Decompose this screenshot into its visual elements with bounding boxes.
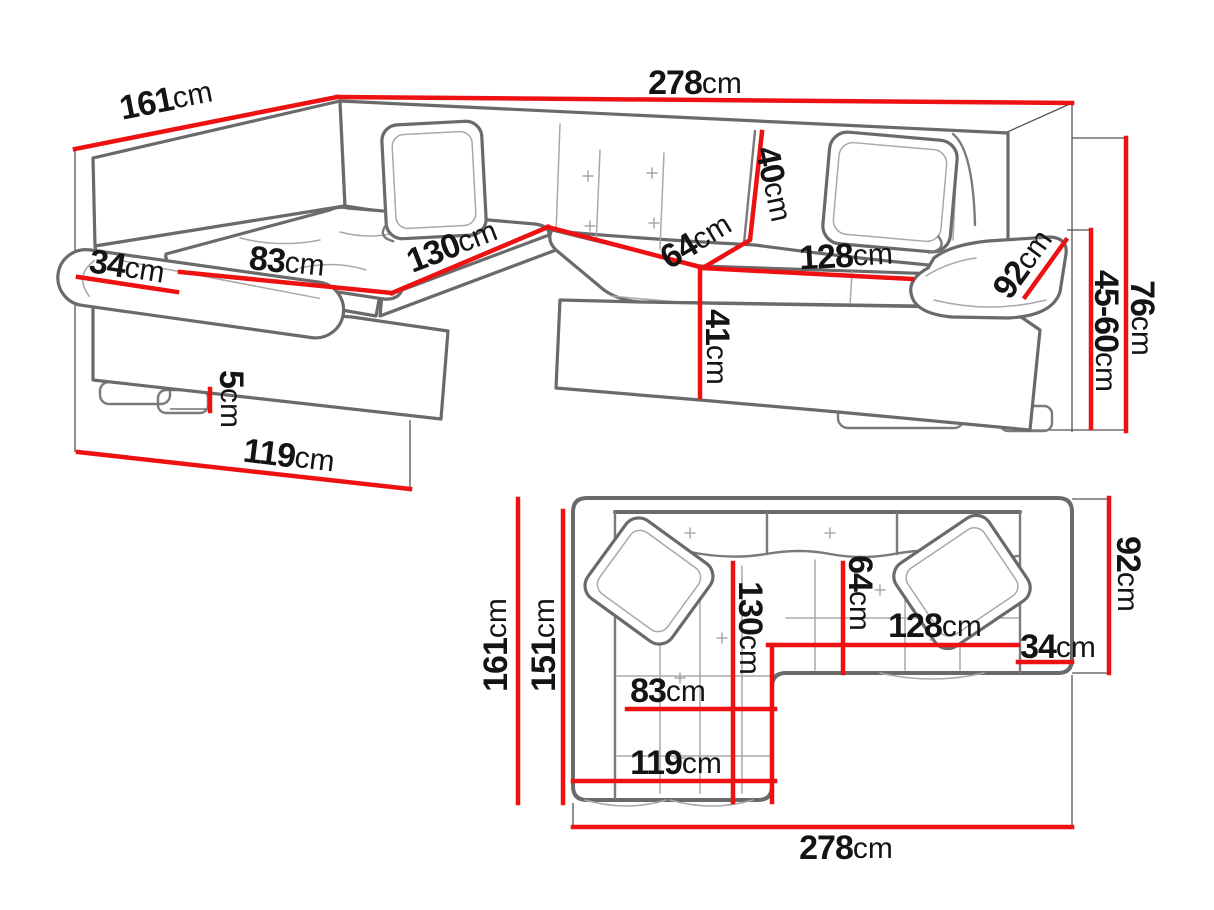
dimension-total-height: 76cm — [1123, 138, 1161, 431]
right-base — [556, 300, 1040, 430]
diagram-svg: 278cm161cm34cm83cm130cm64cm40cm128cm92cm… — [0, 0, 1214, 910]
dimension-total-width: 278cm — [573, 827, 1072, 867]
dimension-adjustable-height: 45-60cm — [1087, 230, 1125, 428]
dimension-label: 130cm — [731, 581, 769, 675]
dimension-label: 278cm — [799, 829, 893, 867]
dimension-side-depth: 92cm — [1109, 498, 1147, 673]
dimension-label: 83cm — [630, 672, 706, 710]
pillow — [821, 131, 958, 255]
dimension-label: 45-60cm — [1087, 270, 1125, 392]
dimension-armrest-width: 34cm — [1018, 628, 1096, 666]
dimension-label: 161cm — [477, 598, 515, 692]
dimension-depth-to-backrest: 151cm — [525, 511, 563, 803]
dimension-label: 119cm — [630, 744, 722, 782]
dimension-total-width: 278cm — [337, 64, 1072, 103]
dimension-label: 151cm — [525, 598, 563, 692]
dimension-chaise-front-width: 119cm — [78, 432, 410, 489]
sofa-sketch-plan: 161cm151cm130cm64cm128cm34cm92cm83cm119c… — [477, 498, 1147, 867]
dimension-label: 64cm — [841, 555, 879, 631]
sofa-sketch-perspective: 278cm161cm34cm83cm130cm64cm40cm128cm92cm… — [54, 64, 1161, 489]
sofa-dimension-diagram: 278cm161cm34cm83cm130cm64cm40cm128cm92cm… — [0, 0, 1214, 910]
dimension-label: 5cm — [212, 370, 250, 428]
dimension-label: 34cm — [1020, 628, 1096, 666]
dimension-total-depth: 161cm — [477, 499, 518, 803]
dimension-leg-height: 5cm — [210, 370, 250, 428]
dimension-label: 41cm — [698, 309, 736, 385]
dimension-label: 76cm — [1123, 280, 1161, 356]
dimension-label: 161cm — [116, 72, 215, 127]
dimension-label: 278cm — [648, 64, 742, 102]
dimension-label: 92cm — [1109, 536, 1147, 612]
dimension-label: 128cm — [888, 607, 982, 645]
